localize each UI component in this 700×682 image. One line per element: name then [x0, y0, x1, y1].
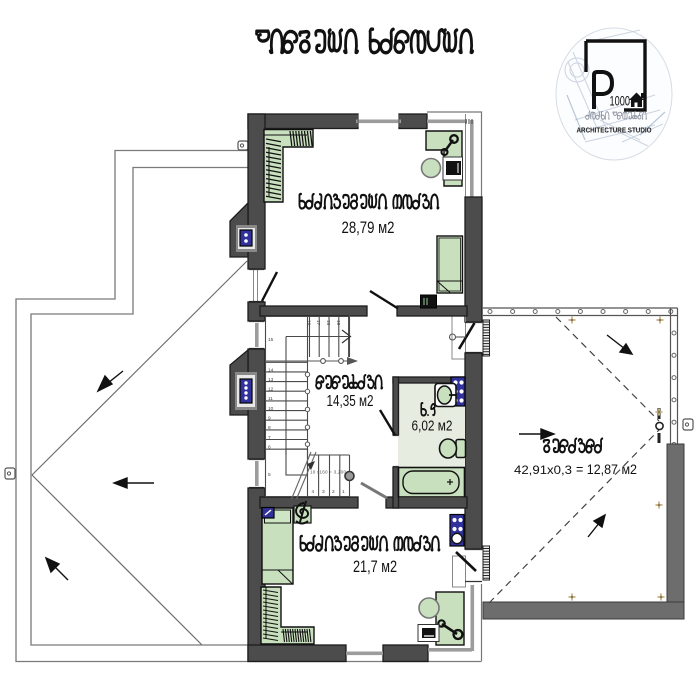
svg-text:9: 9: [268, 416, 271, 422]
svg-text:14: 14: [268, 367, 274, 373]
svg-text:10: 10: [268, 406, 274, 412]
svg-text:13: 13: [268, 377, 274, 383]
svg-text:17: 17: [315, 320, 321, 326]
svg-text:10 x160 = 3,200: 10 x160 = 3,200: [310, 470, 346, 475]
svg-text:1: 1: [342, 489, 345, 495]
svg-text:6,02 м2: 6,02 м2: [412, 419, 453, 435]
svg-text:6: 6: [268, 445, 271, 451]
svg-text:28,79 м2: 28,79 м2: [342, 218, 395, 237]
svg-text:14,35 м2: 14,35 м2: [327, 393, 374, 410]
svg-text:8: 8: [268, 425, 271, 431]
svg-text:21,7 м2: 21,7 м2: [353, 557, 397, 576]
svg-text:ARCHITECTURE STUDIO: ARCHITECTURE STUDIO: [577, 126, 652, 135]
svg-text:15: 15: [268, 337, 274, 343]
svg-text:7: 7: [268, 435, 271, 441]
svg-text:1000: 1000: [610, 94, 631, 109]
svg-text:16: 16: [306, 320, 312, 326]
svg-text:12: 12: [268, 387, 274, 393]
svg-text:19: 19: [335, 320, 341, 326]
svg-text:3: 3: [322, 489, 325, 495]
svg-text:5: 5: [268, 472, 271, 478]
svg-text:11: 11: [268, 396, 273, 402]
svg-text:= 12,87 м2: = 12,87 м2: [576, 462, 637, 477]
svg-text:4: 4: [312, 489, 315, 495]
svg-text:18: 18: [325, 320, 331, 326]
svg-text:2: 2: [332, 489, 335, 495]
svg-text:42,91x0,3: 42,91x0,3: [514, 465, 572, 477]
